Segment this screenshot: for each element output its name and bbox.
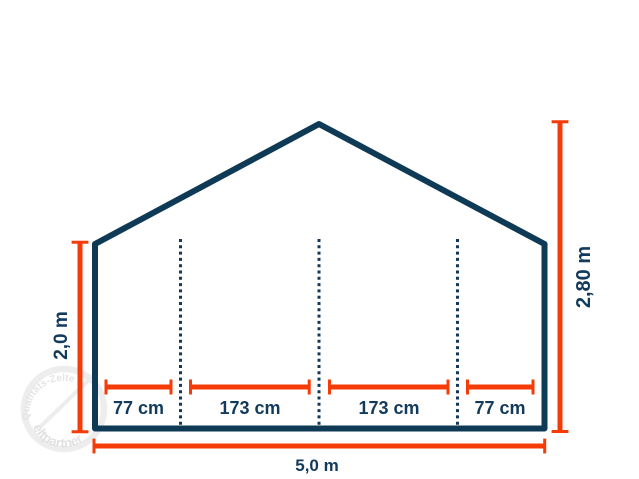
svg-text:2,80 m: 2,80 m bbox=[573, 246, 595, 308]
svg-text:77 cm: 77 cm bbox=[113, 398, 164, 418]
svg-text:5,0 m: 5,0 m bbox=[295, 456, 338, 475]
svg-text:2,0 m: 2,0 m bbox=[51, 311, 72, 360]
svg-text:173 cm: 173 cm bbox=[358, 398, 419, 418]
svg-text:77 cm: 77 cm bbox=[474, 398, 525, 418]
svg-text:173 cm: 173 cm bbox=[219, 398, 280, 418]
